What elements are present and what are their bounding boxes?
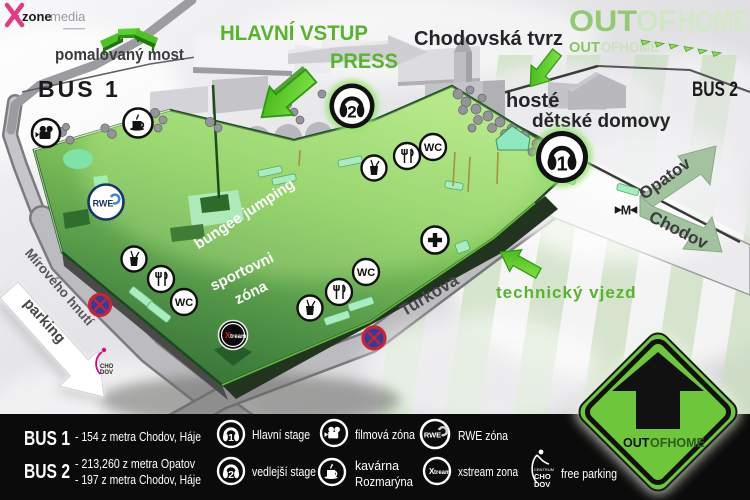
svg-text:OUT: OUT: [569, 5, 637, 38]
svg-text:RWE: RWE: [93, 199, 114, 209]
svg-text:OUT: OUT: [623, 436, 650, 450]
svg-text:filmová zóna: filmová zóna: [355, 428, 415, 442]
svg-text:tream: tream: [434, 470, 450, 476]
svg-text:free parking: free parking: [561, 467, 617, 481]
svg-text:Chodovská tvrz: Chodovská tvrz: [414, 28, 563, 50]
svg-text:PRESS: PRESS: [330, 50, 398, 73]
svg-text:BUS 1: BUS 1: [38, 76, 121, 102]
svg-text:WC: WC: [424, 142, 442, 154]
svg-text:WC: WC: [357, 267, 375, 279]
svg-text:...: ...: [76, 17, 81, 23]
svg-text:tream: tream: [230, 334, 246, 340]
svg-text:BUS 2: BUS 2: [692, 78, 738, 101]
svg-text:technický vjezd: technický vjezd: [496, 283, 637, 302]
svg-text:WC: WC: [175, 297, 193, 309]
svg-text:xstream zona: xstream zona: [458, 465, 518, 479]
svg-text:- 213,260 z metra Opatov: - 213,260 z metra Opatov: [75, 457, 196, 471]
svg-text:hosté: hosté: [506, 90, 559, 112]
svg-text:- 154 z metra Chodov, Háje: - 154 z metra Chodov, Háje: [75, 430, 201, 444]
svg-text:HOME: HOME: [678, 5, 749, 38]
svg-text:M: M: [621, 203, 631, 217]
svg-text:DOV: DOV: [534, 480, 550, 489]
svg-text:kavárna: kavárna: [355, 459, 399, 473]
svg-text:pomalovaný most: pomalovaný most: [55, 45, 184, 64]
svg-text:OF: OF: [636, 5, 676, 38]
svg-text:BUS 1: BUS 1: [24, 428, 70, 450]
svg-text:HLAVNÍ VSTUP: HLAVNÍ VSTUP: [220, 22, 368, 45]
svg-text:- 197 z metra Chodov, Háje: - 197 z metra Chodov, Háje: [75, 473, 201, 487]
svg-text:Hlavní stage: Hlavní stage: [252, 428, 310, 442]
svg-text:OFHOME: OFHOME: [650, 436, 705, 450]
svg-text:1: 1: [556, 154, 567, 176]
svg-text:vedlejší stage: vedlejší stage: [252, 465, 316, 479]
svg-text:Rozmarýna: Rozmarýna: [355, 475, 413, 489]
svg-text:2: 2: [228, 469, 234, 481]
svg-text:RWE: RWE: [424, 431, 441, 440]
svg-text:BUS 2: BUS 2: [24, 461, 70, 483]
svg-text:zone: zone: [22, 9, 52, 24]
svg-text:DOV: DOV: [100, 370, 113, 376]
svg-text:2: 2: [347, 103, 356, 122]
svg-text:1: 1: [228, 432, 234, 444]
svg-text:RWE zóna: RWE zóna: [458, 429, 508, 443]
svg-text:OUT: OUT: [569, 39, 600, 56]
